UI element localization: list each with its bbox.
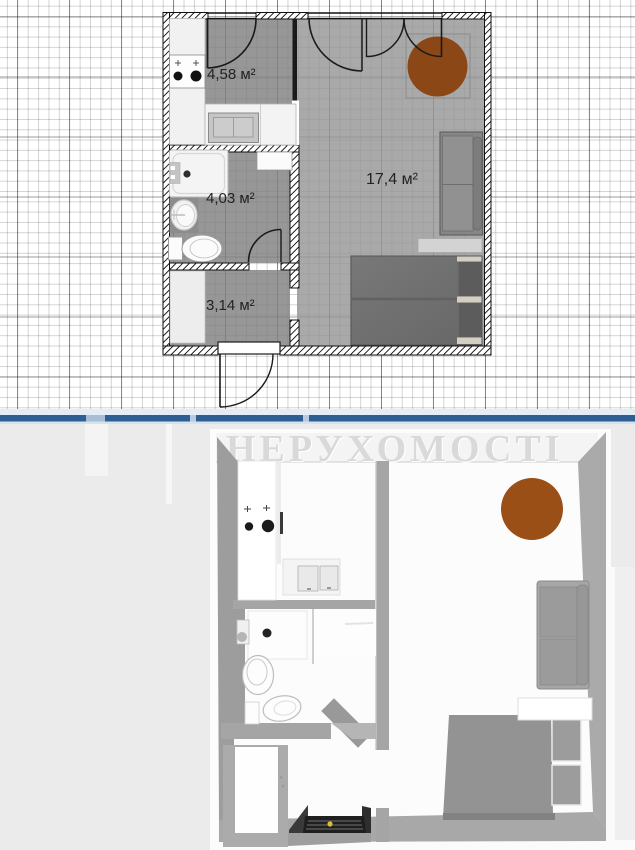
svg-text:17,4 м²: 17,4 м²	[366, 171, 419, 188]
svg-text:4,58 м²: 4,58 м²	[207, 66, 256, 83]
svg-text:4,03 м²: 4,03 м²	[206, 190, 255, 207]
svg-text:НЕРУХОМОСТІ: НЕРУХОМОСТІ	[226, 428, 564, 470]
svg-text:3,14 м²: 3,14 м²	[206, 297, 255, 314]
